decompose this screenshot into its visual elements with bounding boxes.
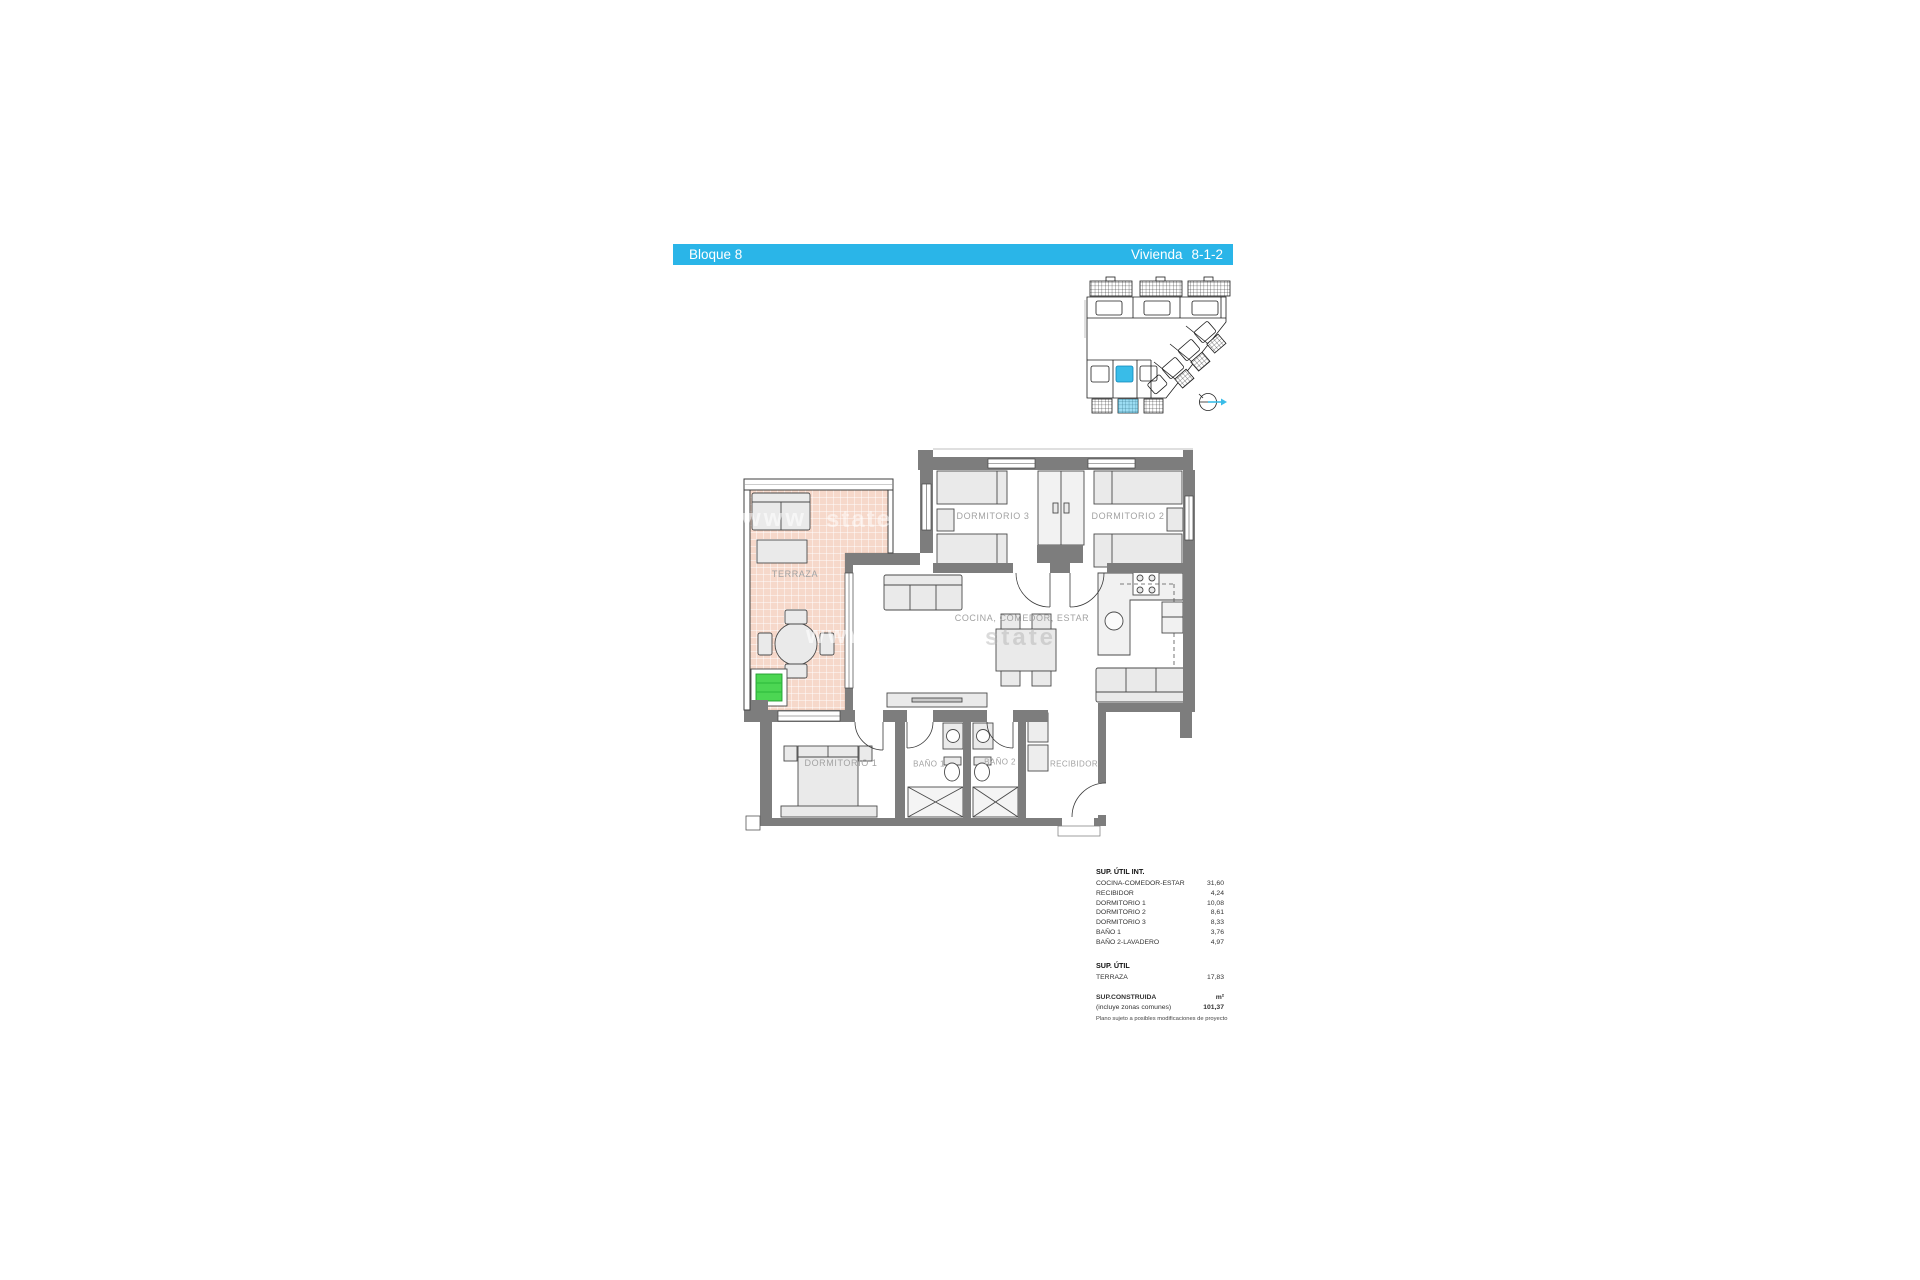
- living-sofa-icon: [884, 575, 962, 610]
- room-label-cocina: COCINA, COMEDOR, ESTAR: [955, 613, 1090, 623]
- area-row: BAÑO 1 3,76: [1096, 928, 1224, 938]
- stove-icon: [1133, 571, 1159, 595]
- room-label-dormitorio2: DORMITORIO 2: [1091, 511, 1164, 521]
- area-row: DORMITORIO 3 8,33: [1096, 918, 1224, 928]
- bath2-fixtures-icon: [973, 723, 993, 781]
- terrace-table-icon: [757, 540, 807, 563]
- areas-table: SUP. ÚTIL INT. COCINA-COMEDOR-ESTAR 31,6…: [1096, 867, 1224, 1022]
- terrace-sofa-icon: [752, 493, 810, 530]
- built-title: SUP.CONSTRUIDA: [1096, 993, 1156, 1003]
- bath1-fixtures-icon: [943, 723, 963, 781]
- area-row: DORMITORIO 2 8,61: [1096, 908, 1224, 918]
- area-row: DORMITORIO 1 10,08: [1096, 899, 1224, 909]
- built-value: 101,37: [1203, 1003, 1224, 1013]
- room-label-dormitorio3: DORMITORIO 3: [956, 511, 1029, 521]
- plan-page: Bloque 8 Vivienda 8-1-2: [0, 0, 1920, 1280]
- area-row: TERRAZA 17,83: [1096, 973, 1224, 983]
- tv-cabinet-icon: [887, 693, 987, 707]
- room-label-bano1: BAÑO 1: [913, 760, 945, 769]
- room-label-dormitorio1: DORMITORIO 1: [804, 758, 877, 768]
- built-title-row: SUP.CONSTRUIDA m²: [1096, 993, 1224, 1003]
- north-arrow-icon: [1199, 394, 1227, 411]
- dining-table-icon: [996, 614, 1056, 686]
- siteplan-panels-icon: [1090, 277, 1230, 296]
- built-value-row: (incluye zonas comunes) 101,37: [1096, 1003, 1224, 1013]
- util-int-title: SUP. ÚTIL INT.: [1096, 867, 1224, 876]
- kitchen-sofa-icon: [1096, 668, 1186, 702]
- area-row: RECIBIDOR 4,24: [1096, 889, 1224, 899]
- room-label-bano2: BAÑO 2: [984, 758, 1016, 767]
- area-row: COCINA-COMEDOR-ESTAR 31,60: [1096, 879, 1224, 889]
- bed-dorm1-icon: [781, 746, 877, 817]
- footnote: Plano sujeto a posibles modificaciones d…: [1096, 1016, 1224, 1022]
- room-label-terraza: TERRAZA: [772, 569, 818, 579]
- highlighted-unit: [1116, 366, 1133, 382]
- floor-plan-drawing: [744, 449, 1195, 836]
- wardrobe-icon: [1038, 471, 1084, 545]
- built-unit: m²: [1216, 993, 1224, 1003]
- site-plan-drawing: [1085, 277, 1230, 413]
- util-title: SUP. ÚTIL: [1096, 961, 1224, 970]
- fridge-icon: [1162, 602, 1183, 633]
- area-row: BAÑO 2-LAVADERO 4,97: [1096, 938, 1224, 948]
- built-note: (incluye zonas comunes): [1096, 1003, 1171, 1013]
- plan-drawing: [0, 0, 1920, 1280]
- room-label-recibidor: RECIBIDOR: [1050, 760, 1098, 769]
